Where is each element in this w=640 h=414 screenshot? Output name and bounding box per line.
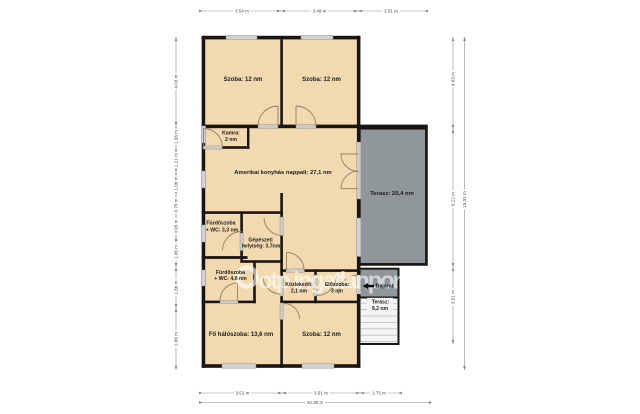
svg-text:Kamra:: Kamra: (222, 130, 240, 136)
svg-text:15.31 m: 15.31 m (462, 191, 467, 208)
svg-text:Közlekedő:: Közlekedő: (285, 282, 313, 288)
svg-text:1.08 m: 1.08 m (174, 176, 179, 190)
svg-text:6.22 m: 6.22 m (451, 192, 456, 206)
svg-text:Bejárat: Bejárat (376, 284, 394, 290)
svg-text:Amerikai konyhás nappali: 27,1: Amerikai konyhás nappali: 27,1 nm (234, 170, 331, 176)
svg-text:1.36 m: 1.36 m (174, 245, 179, 259)
svg-text:+ WC: 3,3 nm: + WC: 3,3 nm (206, 228, 239, 234)
svg-text:3.51 m: 3.51 m (451, 290, 456, 304)
svg-text:Szoba: 12 nm: Szoba: 12 nm (302, 332, 341, 338)
svg-text:3 nm: 3 nm (331, 288, 343, 294)
svg-text:Szoba: 12 nm: Szoba: 12 nm (224, 77, 263, 83)
svg-text:1.08 m: 1.08 m (174, 130, 179, 144)
svg-text:9,2 nm: 9,2 nm (372, 306, 389, 312)
svg-text:3.48 m: 3.48 m (312, 9, 326, 14)
svg-text:4.03 m: 4.03 m (451, 72, 456, 86)
svg-text:3.51 m: 3.51 m (235, 391, 249, 396)
svg-text:Fürdőszoba: Fürdőszoba (216, 270, 245, 276)
svg-text:Gépészeti: Gépészeti (248, 237, 273, 243)
svg-text:2 nm: 2 nm (225, 137, 237, 143)
svg-text:Fő hálószoba: 13,6 nm: Fő hálószoba: 13,6 nm (209, 332, 273, 338)
svg-text:helyiség: 3,7nm: helyiség: 3,7nm (242, 244, 281, 250)
svg-text:3.51 m: 3.51 m (384, 9, 398, 14)
svg-text:Szoba: 12 nm: Szoba: 12 nm (302, 77, 341, 83)
svg-text:0.95 m: 0.95 m (174, 219, 179, 233)
svg-text:2,1 nm: 2,1 nm (291, 288, 308, 294)
svg-text:+ WC: 4,6 nm: + WC: 4,6 nm (214, 276, 247, 282)
svg-text:1.75 m: 1.75 m (372, 391, 386, 396)
svg-text:3.54 m: 3.54 m (235, 9, 249, 14)
svg-text:2.86 m: 2.86 m (174, 332, 179, 346)
svg-text:Fürdőszoba: Fürdőszoba (206, 220, 235, 226)
svg-text:0.75 m: 0.75 m (174, 198, 179, 212)
svg-text:Előszoba:: Előszoba: (325, 282, 350, 288)
svg-text:Terasz:: Terasz: (372, 299, 390, 305)
svg-text:4.03 m: 4.03 m (174, 74, 179, 88)
svg-text:Terasz: 20,4 nm: Terasz: 20,4 nm (370, 191, 414, 197)
svg-text:10.38 m: 10.38 m (307, 400, 324, 405)
svg-text:1.21 m: 1.21 m (174, 153, 179, 167)
svg-text:3.51 m: 3.51 m (314, 391, 328, 396)
svg-text:1.86 m: 1.86 m (174, 280, 179, 294)
